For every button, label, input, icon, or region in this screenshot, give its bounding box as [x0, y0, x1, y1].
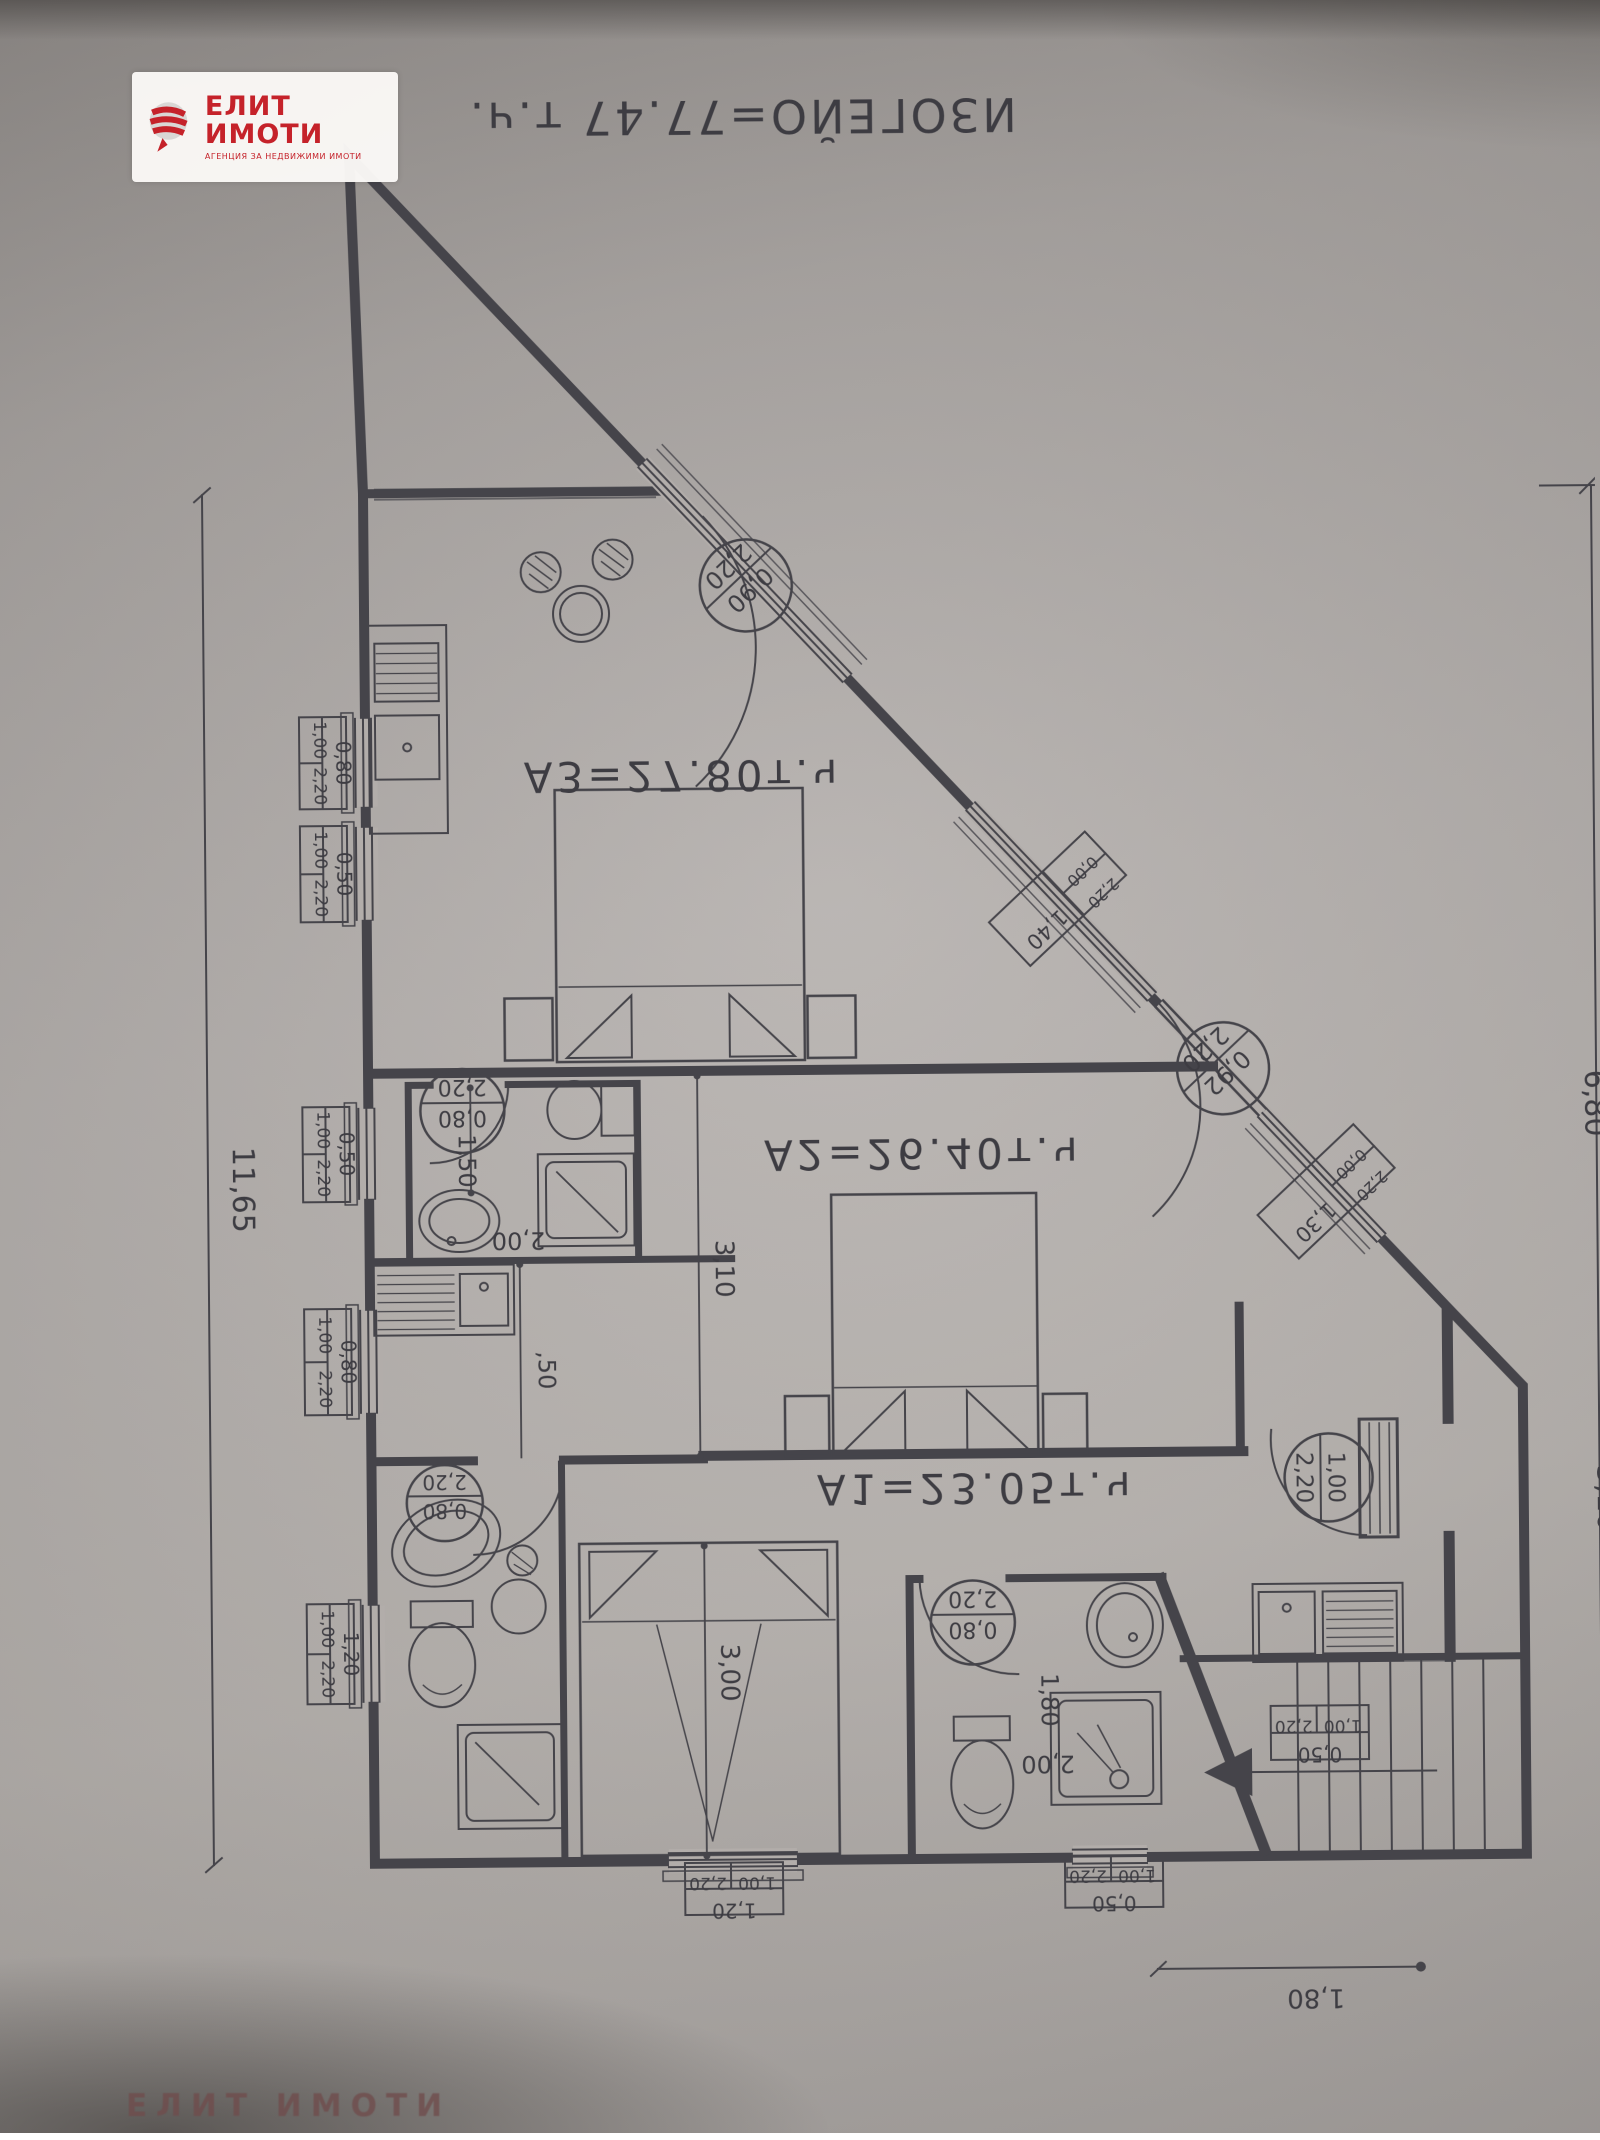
- door-tag-bath-a1-center: 0,80 2,20: [930, 1580, 1015, 1665]
- dim-a1-room-length: 3,00: [714, 1644, 745, 1702]
- svg-text:1,00: 1,00: [314, 1316, 334, 1354]
- svg-text:1,30: 1,30: [1290, 1197, 1340, 1247]
- dim-bottom: 1,80: [1287, 1982, 1345, 2013]
- dim-bath-a1-width: 1,80: [1035, 1673, 1063, 1727]
- svg-text:1,00: 1,00: [312, 1111, 332, 1149]
- svg-text:1,00: 1,00: [310, 831, 330, 869]
- apartment-label-a2: А2=26.40т.ч: [764, 1128, 1082, 1180]
- svg-text:1,00: 1,00: [1118, 1865, 1156, 1885]
- svg-text:0,80: 0,80: [331, 741, 355, 786]
- agency-logo-title: ЕЛИТ ИМОТИ: [205, 93, 388, 150]
- svg-text:2,20: 2,20: [1275, 1716, 1313, 1736]
- window-tag-left-1: 0,80 1,00 2,20: [299, 717, 356, 809]
- svg-text:2,20: 2,20: [1069, 1865, 1107, 1885]
- apartment-label-a1: А1=23.05т.ч: [817, 1462, 1135, 1514]
- svg-text:2,20: 2,20: [317, 1660, 337, 1698]
- diagonal-window-a3: [636, 443, 868, 786]
- stairs: [1203, 1656, 1485, 1854]
- dim-bath-a2-depth: 2,00: [492, 1226, 546, 1254]
- svg-text:1,00: 1,00: [317, 1610, 337, 1648]
- dim-kitchen-offset: ,50: [532, 1351, 560, 1389]
- photographed-floor-plan: ИЗОГЕЙО=77.47 т.ч. А3=27.80т.ч А2=26.40т…: [0, 0, 1600, 2133]
- svg-text:0,50: 0,50: [335, 1132, 359, 1177]
- window-tag-left-2: 0,50 1,00 2,20: [300, 826, 357, 922]
- window-tag-left-3: 0,50 1,00 2,20: [302, 1107, 359, 1202]
- svg-text:1,00: 1,00: [309, 721, 329, 759]
- svg-text:2,20: 2,20: [309, 767, 329, 805]
- svg-text:1,00: 1,00: [1322, 1452, 1348, 1503]
- table-and-stools-a3: [520, 539, 633, 642]
- dim-left-height: 11,65: [225, 1147, 261, 1233]
- door-tag-bath-a1-left: 0,80 2,20: [406, 1465, 483, 1542]
- table-a1: [491, 1545, 546, 1633]
- svg-text:2,20: 2,20: [1084, 874, 1123, 912]
- svg-text:0,80: 0,80: [422, 1499, 467, 1523]
- svg-text:0,00: 0,00: [1063, 852, 1102, 890]
- exterior-walls: [349, 146, 1527, 1864]
- svg-text:2,20: 2,20: [310, 879, 330, 917]
- kitchenette-a3: [368, 625, 448, 834]
- svg-text:2,20: 2,20: [948, 1585, 997, 1610]
- floor-plan-drawing: ИЗОГЕЙО=77.47 т.ч. А3=27.80т.ч А2=26.40т…: [0, 0, 1600, 2140]
- bed-a3: [503, 788, 856, 1063]
- bed-a2: [783, 1193, 1087, 1458]
- svg-text:1,00: 1,00: [1324, 1715, 1362, 1735]
- dim-a2-room-length: 3,10: [709, 1240, 740, 1298]
- total-area-label: ИЗОГЕЙО=77.47 т.ч.: [467, 87, 1017, 146]
- kitchen-a1: [1253, 1583, 1404, 1662]
- svg-text:0,80: 0,80: [948, 1616, 997, 1641]
- svg-text:2,20: 2,20: [313, 1159, 333, 1197]
- dim-bath-a2-width: 1,50: [453, 1134, 481, 1188]
- agency-watermark: ЕЛИТ ИМОТИ: [126, 2088, 451, 2124]
- agency-logo-subtitle: АГЕНЦИЯ ЗА НЕДВИЖИМИ ИМОТИ: [205, 153, 388, 161]
- svg-text:2,20: 2,20: [689, 1873, 727, 1893]
- svg-text:2,20: 2,20: [422, 1470, 467, 1494]
- svg-text:0,00: 0,00: [1332, 1145, 1371, 1183]
- dim-right-lower: 3,10: [1590, 1464, 1600, 1531]
- svg-text:2,20: 2,20: [438, 1074, 487, 1099]
- svg-text:2,20: 2,20: [1352, 1167, 1391, 1205]
- dim-right-upper: 6,80: [1577, 1070, 1600, 1137]
- svg-text:1,00: 1,00: [738, 1872, 776, 1892]
- svg-text:0,50: 0,50: [1092, 1891, 1137, 1915]
- window-tag-left-5: 1,20 1,00 2,20: [307, 1604, 364, 1704]
- agency-logo-icon: [142, 94, 195, 160]
- svg-text:0,50: 0,50: [332, 852, 356, 897]
- svg-text:1,20: 1,20: [339, 1632, 363, 1677]
- kitchen-a2: [374, 1265, 515, 1336]
- svg-text:2,20: 2,20: [315, 1370, 335, 1408]
- svg-text:0,80: 0,80: [336, 1340, 360, 1385]
- svg-text:1,20: 1,20: [712, 1898, 757, 1922]
- plan-sheet: ИЗОГЕЙО=77.47 т.ч. А3=27.80т.ч А2=26.40т…: [0, 0, 1600, 2140]
- svg-text:0,80: 0,80: [438, 1105, 487, 1130]
- svg-text:0,50: 0,50: [1298, 1742, 1343, 1766]
- dim-bath-a1-depth: 2,00: [1021, 1750, 1075, 1778]
- window-tag-left-4: 0,80 1,00 2,20: [304, 1309, 361, 1415]
- bathroom-a1-left-fixtures: [378, 1483, 562, 1830]
- bed-a1: [579, 1542, 840, 1856]
- apartment-label-a3: А3=27.80т.ч: [523, 750, 841, 802]
- window-tag-stairs: 2,20 1,00 0,50: [1271, 1705, 1370, 1767]
- agency-logo: ЕЛИТ ИМОТИ АГЕНЦИЯ ЗА НЕДВИЖИМИ ИМОТИ: [132, 72, 398, 182]
- svg-text:2,20: 2,20: [1290, 1452, 1316, 1503]
